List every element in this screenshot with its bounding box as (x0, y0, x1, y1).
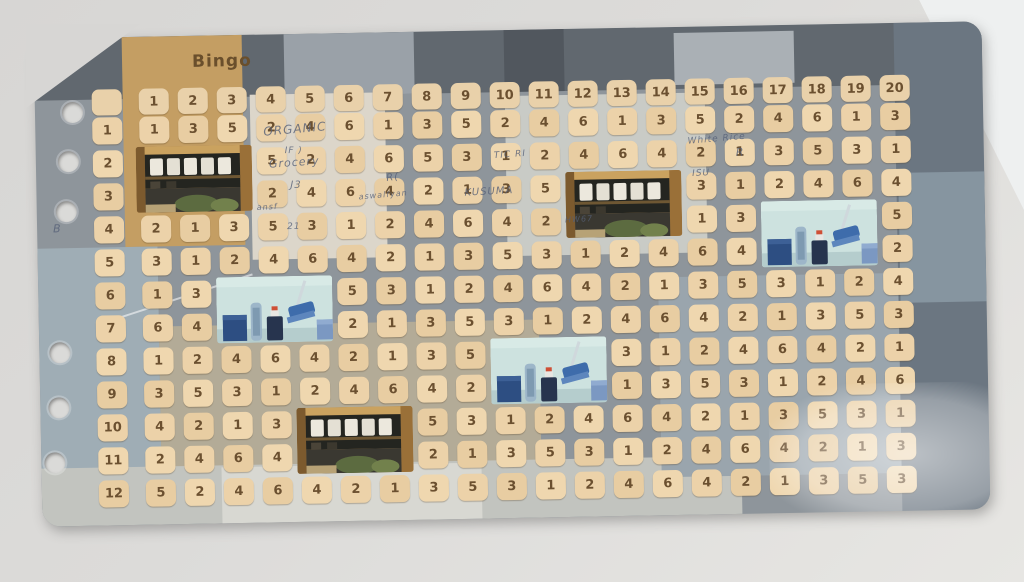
number-tile[interactable]: 3 (376, 277, 406, 305)
number-tile[interactable]: 3 (574, 438, 604, 466)
number-tile[interactable]: 1 (373, 112, 403, 140)
number-tile[interactable]: 3 (181, 281, 211, 309)
number-tile[interactable]: 2 (375, 244, 405, 272)
number-tile[interactable]: 5 (803, 137, 833, 165)
number-tile[interactable]: 4 (883, 268, 913, 296)
number-tile[interactable]: 3 (884, 301, 914, 329)
number-tile[interactable]: 3 (297, 212, 327, 240)
number-tile[interactable]: 3 (646, 107, 676, 135)
number-tile[interactable]: 2 (183, 412, 213, 440)
number-tile[interactable]: 5 (535, 439, 565, 467)
number-tile[interactable]: 3 (416, 309, 446, 337)
number-tile[interactable]: 1 (841, 103, 871, 131)
number-tile[interactable]: 4 (258, 246, 288, 274)
shop-shelf-photo-2 (565, 170, 682, 238)
number-tile[interactable]: 3 (531, 241, 561, 269)
number-tile[interactable]: 4 (647, 140, 677, 168)
column-header-tile: 5 (295, 85, 325, 112)
number-tile[interactable]: 4 (846, 367, 876, 395)
number-tile[interactable]: 4 (573, 405, 603, 433)
number-tile[interactable]: 1 (180, 248, 210, 276)
number-tile[interactable]: 4 (614, 471, 644, 499)
handwriting-note: ISU (692, 168, 710, 179)
handwriting-note: IF ) (285, 146, 303, 156)
number-tile[interactable]: 1 (377, 310, 407, 338)
number-tile[interactable]: 6 (143, 314, 173, 342)
column-header-tile: 19 (840, 75, 870, 102)
column-header-tile: 2 (178, 88, 208, 115)
number-tile[interactable]: 3 (412, 111, 442, 139)
blue-room-photo-2 (216, 275, 333, 343)
number-tile[interactable]: 5 (848, 466, 878, 494)
number-tile[interactable]: 1 (533, 307, 563, 335)
binder-hole (62, 102, 83, 123)
row-label-tile: 4 (94, 216, 124, 244)
number-tile[interactable]: 2 (764, 171, 794, 199)
number-tile[interactable]: 3 (456, 407, 486, 435)
number-tile[interactable]: 3 (141, 248, 171, 276)
column-header-tile: 15 (684, 78, 714, 105)
column-header-tile: 11 (528, 81, 558, 108)
number-tile[interactable]: 1 (570, 240, 600, 268)
number-tile[interactable]: 4 (689, 304, 719, 332)
number-tile[interactable]: 4 (692, 469, 722, 497)
column-header-tile: 1 (139, 88, 169, 115)
number-tile[interactable]: 2 (456, 374, 486, 402)
number-tile[interactable]: 5 (146, 479, 176, 507)
number-tile[interactable]: 6 (260, 345, 290, 373)
number-tile[interactable]: 4 (417, 375, 447, 403)
number-tile[interactable]: 3 (497, 473, 527, 501)
number-tile[interactable]: 2 (728, 304, 758, 332)
number-tile[interactable]: 3 (846, 400, 876, 428)
number-tile[interactable]: 2 (219, 247, 249, 275)
number-tile[interactable]: 4 (651, 404, 681, 432)
number-tile[interactable]: 3 (453, 243, 483, 271)
number-tile[interactable]: 4 (806, 335, 836, 363)
number-tile[interactable]: 4 (529, 109, 559, 137)
number-tile[interactable]: 2 (724, 106, 754, 134)
number-tile[interactable]: 1 (336, 212, 366, 240)
number-tile[interactable]: 2 (845, 334, 875, 362)
number-tile[interactable]: 5 (337, 278, 367, 306)
number-tile[interactable]: 3 (419, 474, 449, 502)
binder-hole (56, 201, 77, 222)
number-tile[interactable]: 1 (380, 475, 410, 503)
number-tile[interactable]: 4 (881, 169, 911, 197)
number-tile[interactable]: 3 (764, 138, 794, 166)
shop-shelf-photo-3 (296, 406, 413, 474)
column-header-tile: 18 (801, 76, 831, 103)
number-tile[interactable]: 1 (725, 172, 755, 200)
number-tile[interactable]: 1 (687, 205, 717, 233)
number-tile[interactable]: 2 (300, 377, 330, 405)
number-tile[interactable]: 4 (184, 445, 214, 473)
column-header-tile: 7 (373, 84, 403, 111)
number-tile[interactable]: 4 (339, 377, 369, 405)
number-tile[interactable]: 2 (572, 306, 602, 334)
number-tile[interactable]: 6 (223, 445, 253, 473)
row-label-tile: 7 (96, 315, 126, 343)
number-tile[interactable]: 1 (729, 402, 759, 430)
number-tile[interactable]: 3 (416, 342, 446, 370)
row-label-tile: 1 (92, 117, 122, 145)
number-tile[interactable]: 3 (842, 136, 872, 164)
number-tile[interactable]: 4 (493, 275, 523, 303)
number-tile[interactable]: 5 (455, 342, 485, 370)
number-tile[interactable]: 3 (880, 103, 910, 131)
number-tile[interactable]: 3 (809, 467, 839, 495)
number-tile[interactable]: 2 (338, 311, 368, 339)
row-label-tile: 3 (93, 183, 123, 211)
number-tile[interactable]: 3 (768, 402, 798, 430)
number-tile[interactable]: 1 (457, 440, 487, 468)
number-tile[interactable]: 2 (490, 110, 520, 138)
number-tile[interactable]: 1 (261, 378, 291, 406)
number-tile[interactable]: 2 (808, 434, 838, 462)
number-tile[interactable]: 4 (769, 435, 799, 463)
number-tile[interactable]: 5 (530, 175, 560, 203)
column-header-tile: 4 (256, 86, 286, 113)
number-tile[interactable]: 5 (413, 144, 443, 172)
column-header-tile: 3 (217, 87, 247, 114)
number-tile[interactable]: 3 (494, 308, 524, 336)
number-tile[interactable]: 5 (183, 379, 213, 407)
row-label-tile: 10 (98, 414, 128, 442)
number-tile[interactable]: 1 (414, 243, 444, 271)
handwriting-note: 21 (287, 222, 301, 232)
number-tile[interactable]: 6 (608, 141, 638, 169)
number-tile[interactable]: 2 (652, 437, 682, 465)
number-tile[interactable]: 5 (258, 213, 288, 241)
number-tile[interactable]: 2 (182, 347, 212, 375)
number-tile[interactable]: 4 (571, 273, 601, 301)
number-tile[interactable]: 4 (221, 346, 251, 374)
column-header-tile: 13 (606, 80, 636, 107)
number-tile[interactable]: 3 (611, 339, 641, 367)
column-header-tile: 17 (762, 77, 792, 104)
number-tile[interactable]: 6 (687, 238, 717, 266)
number-tile[interactable]: 3 (887, 466, 917, 494)
number-tile[interactable]: 6 (730, 435, 760, 463)
number-tile[interactable]: 1 (180, 215, 210, 243)
number-tile[interactable]: 3 (178, 116, 208, 144)
number-tile[interactable]: 4 (262, 444, 292, 472)
column-header-tile: 12 (567, 80, 597, 107)
number-tile[interactable]: 6 (767, 336, 797, 364)
number-tile[interactable]: 1 (847, 433, 877, 461)
column-header-tile: 16 (723, 78, 753, 105)
handwriting-note: R (736, 146, 745, 159)
number-tile[interactable]: 1 (607, 108, 637, 136)
number-tile[interactable]: 2 (185, 478, 215, 506)
bingo-board: Bingo 1234567891011121314151617181920113… (34, 21, 991, 526)
number-tile[interactable]: 1 (612, 372, 642, 400)
number-tile[interactable]: 2 (338, 344, 368, 372)
handwriting-note: J3 (290, 180, 301, 191)
number-tile[interactable]: 2 (534, 406, 564, 434)
shop-shelf-photo-1 (136, 145, 253, 213)
number-tile[interactable]: 6 (842, 169, 872, 197)
number-tile[interactable]: 5 (492, 242, 522, 270)
number-tile[interactable]: 3 (452, 144, 482, 172)
number-tile[interactable]: 2 (610, 273, 640, 301)
number-tile[interactable]: 2 (341, 476, 371, 504)
number-tile[interactable]: 4 (611, 306, 641, 334)
number-tile[interactable]: 1 (143, 347, 173, 375)
number-tile[interactable]: 2 (141, 215, 171, 243)
binder-hole (58, 151, 79, 172)
number-tile[interactable]: 1 (613, 438, 643, 466)
number-tile[interactable]: 6 (374, 145, 404, 173)
number-tile[interactable]: 6 (653, 470, 683, 498)
number-tile[interactable]: 4 (302, 476, 332, 504)
number-tile[interactable]: 5 (217, 115, 247, 143)
number-tile[interactable]: 4 (414, 210, 444, 238)
number-tile[interactable]: 1 (768, 369, 798, 397)
number-tile[interactable]: 1 (377, 343, 407, 371)
number-tile[interactable]: 2 (531, 208, 561, 236)
column-header-tile: 10 (489, 82, 519, 109)
number-tile[interactable]: 1 (649, 272, 679, 300)
column-header-tile: 20 (879, 75, 909, 102)
number-tile[interactable]: 3 (144, 380, 174, 408)
number-tile[interactable]: 2 (575, 471, 605, 499)
number-tile[interactable]: 5 (845, 301, 875, 329)
handwriting-note: ansf (257, 202, 278, 212)
number-tile[interactable]: 4 (336, 245, 366, 273)
number-tile[interactable]: 4 (728, 336, 758, 364)
number-tile[interactable]: 4 (763, 105, 793, 133)
board-title: Bingo (192, 51, 252, 72)
blue-room-photo-1 (761, 199, 878, 267)
number-tile[interactable]: 4 (299, 344, 329, 372)
number-tile[interactable]: 6 (532, 274, 562, 302)
number-tile[interactable]: 1 (767, 303, 797, 331)
number-tile[interactable]: 5 (458, 473, 488, 501)
number-tile[interactable]: 4 (335, 146, 365, 174)
number-tile[interactable]: 3 (766, 270, 796, 298)
number-tile[interactable]: 4 (803, 170, 833, 198)
column-header-tile: 8 (411, 83, 441, 110)
column-header-tile: 6 (334, 85, 364, 112)
number-tile[interactable]: 6 (650, 305, 680, 333)
number-tile[interactable]: 5 (685, 106, 715, 134)
number-tile[interactable]: 4 (691, 436, 721, 464)
number-tile[interactable]: 3 (729, 369, 759, 397)
row-label-tile: 2 (93, 150, 123, 178)
number-tile[interactable]: 1 (222, 412, 252, 440)
handwriting-note: B (53, 222, 62, 235)
number-tile[interactable]: 2 (375, 211, 405, 239)
number-tile[interactable]: 6 (297, 245, 327, 273)
number-tile[interactable]: 3 (688, 271, 718, 299)
row-label-tile: 11 (98, 447, 128, 475)
number-tile[interactable]: 1 (885, 400, 915, 428)
row-label-tile: 6 (95, 282, 125, 310)
number-tile[interactable]: 3 (222, 379, 252, 407)
number-tile[interactable]: 5 (882, 202, 912, 230)
number-tile[interactable]: 1 (770, 468, 800, 496)
row-label-tile: 8 (96, 348, 126, 376)
number-tile[interactable]: 2 (689, 337, 719, 365)
number-tile[interactable]: 2 (454, 276, 484, 304)
number-tile[interactable]: 6 (453, 210, 483, 238)
number-tile[interactable]: 2 (609, 240, 639, 268)
number-tile[interactable]: 2 (145, 446, 175, 474)
number-tile[interactable]: 1 (881, 136, 911, 164)
number-tile[interactable]: 6 (334, 113, 364, 141)
number-tile[interactable]: 1 (415, 276, 445, 304)
row-label-tile: 12 (99, 480, 129, 508)
row-label-tile: 9 (97, 381, 127, 409)
number-tile[interactable]: 3 (496, 440, 526, 468)
number-tile[interactable]: 2 (882, 235, 912, 263)
row-label-tile: 5 (94, 249, 124, 277)
desk-surface: Bingo 1234567891011121314151617181920113… (0, 0, 1024, 582)
number-tile[interactable]: 1 (536, 472, 566, 500)
number-tile[interactable]: 4 (182, 314, 212, 342)
number-tile[interactable]: 2 (844, 268, 874, 296)
number-tile[interactable]: 1 (139, 116, 169, 144)
number-tile[interactable]: 6 (263, 477, 293, 505)
number-tile[interactable]: 1 (495, 407, 525, 435)
number-tile[interactable]: 5 (455, 309, 485, 337)
number-tile[interactable]: 3 (651, 371, 681, 399)
handwriting-note: HW67 (565, 214, 594, 224)
number-tile[interactable]: 5 (417, 408, 447, 436)
number-tile[interactable]: 2 (807, 368, 837, 396)
number-tile[interactable]: 5 (451, 111, 481, 139)
number-tile[interactable]: 4 (492, 209, 522, 237)
number-tile[interactable]: 1 (884, 334, 914, 362)
number-tile[interactable]: 6 (802, 104, 832, 132)
number-tile[interactable]: 3 (806, 302, 836, 330)
number-tile[interactable]: 5 (690, 370, 720, 398)
number-tile[interactable]: 5 (807, 401, 837, 429)
number-tile[interactable]: 2 (530, 142, 560, 170)
number-tile[interactable]: 3 (886, 433, 916, 461)
number-tile[interactable]: 1 (142, 281, 172, 309)
number-tile[interactable]: 1 (650, 338, 680, 366)
number-tile[interactable]: 4 (224, 478, 254, 506)
number-tile[interactable]: 4 (726, 238, 756, 266)
blue-room-photo-3 (490, 336, 607, 404)
number-tile[interactable]: 1 (805, 269, 835, 297)
number-tile[interactable]: 3 (261, 411, 291, 439)
corner-header-tile (92, 89, 122, 116)
number-tile[interactable]: 4 (144, 413, 174, 441)
column-header-tile: 9 (450, 83, 480, 110)
column-header-tile: 14 (645, 79, 675, 106)
number-tile[interactable]: 2 (690, 403, 720, 431)
number-tile[interactable]: 4 (569, 141, 599, 169)
number-tile[interactable]: 6 (612, 405, 642, 433)
number-tile[interactable]: 3 (219, 214, 249, 242)
number-tile[interactable]: 3 (726, 205, 756, 233)
handwriting-note: R( (386, 171, 400, 183)
number-tile[interactable]: 2 (418, 441, 448, 469)
number-tile[interactable]: 5 (727, 271, 757, 299)
number-tile[interactable]: 6 (885, 367, 915, 395)
number-tile[interactable]: 2 (413, 177, 443, 205)
number-tile[interactable]: 6 (378, 376, 408, 404)
number-tile[interactable]: 2 (731, 468, 761, 496)
number-tile[interactable]: 4 (648, 239, 678, 267)
number-tile[interactable]: 6 (568, 108, 598, 136)
